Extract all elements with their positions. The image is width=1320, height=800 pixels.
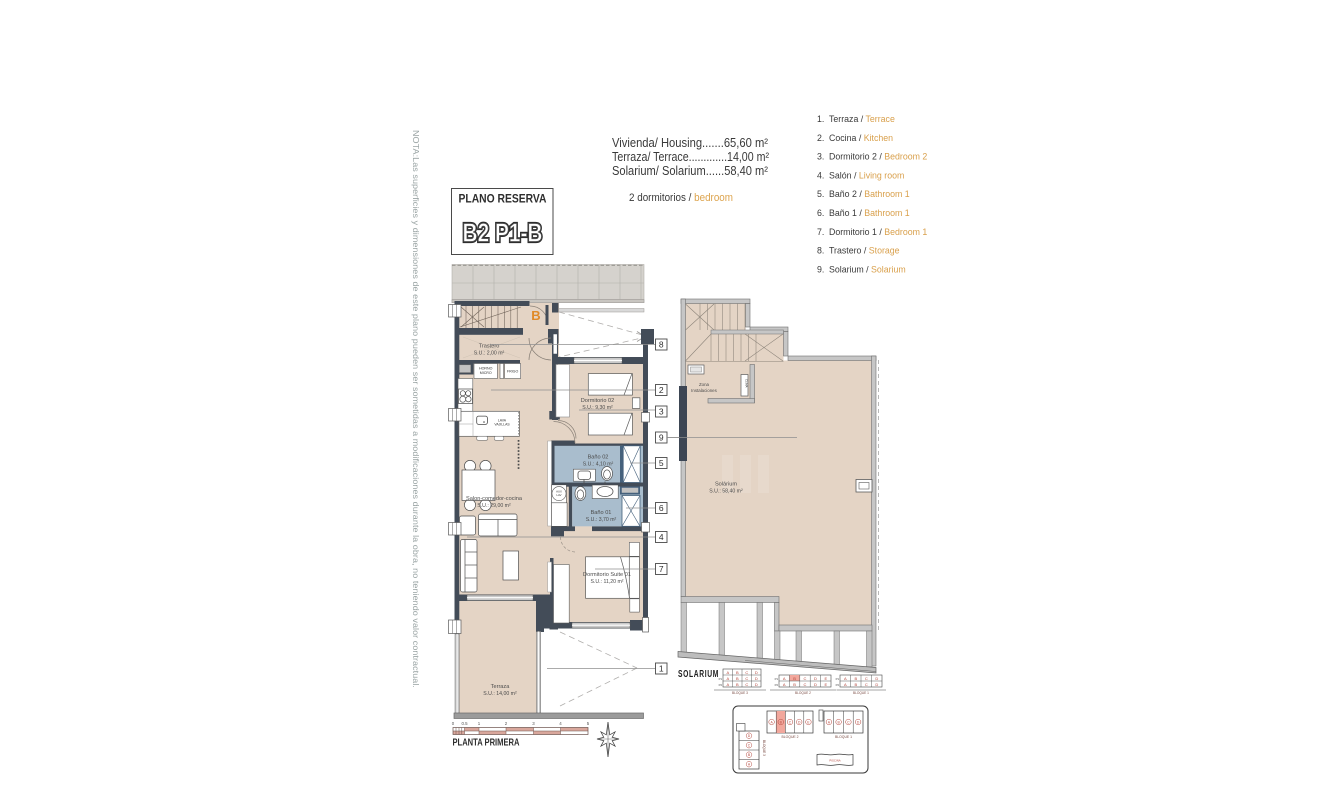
svg-text:8.: 8.	[817, 246, 824, 256]
svg-text:Dormitorio 02: Dormitorio 02	[581, 398, 615, 404]
svg-text:B: B	[854, 676, 857, 681]
svg-text:PLANTA PRIMERA: PLANTA PRIMERA	[453, 737, 520, 749]
svg-text:S.U.: 4,10 m²: S.U.: 4,10 m²	[583, 462, 614, 468]
svg-text:Trastero / Storage: Trastero / Storage	[829, 246, 900, 256]
svg-text:2 dormitorios / bedroom: 2 dormitorios / bedroom	[629, 192, 733, 204]
svg-text:Dormitorio 1 / Bedroom 1: Dormitorio 1 / Bedroom 1	[829, 227, 927, 237]
svg-text:P1: P1	[719, 677, 723, 681]
svg-text:FRIGO: FRIGO	[507, 370, 519, 374]
svg-text:Baño 01: Baño 01	[591, 510, 612, 516]
svg-text:A: A	[844, 682, 847, 687]
svg-text:Vivienda/ Housing.......65,60: Vivienda/ Housing.......65,60 m²	[612, 135, 769, 150]
svg-text:Terraza/ Terrace.............1: Terraza/ Terrace.............14,00 m²	[612, 149, 769, 164]
svg-text:C: C	[745, 682, 748, 687]
svg-text:A: A	[783, 682, 786, 687]
svg-text:Baño 02: Baño 02	[588, 455, 609, 461]
svg-text:B2 P1-B: B2 P1-B	[463, 218, 543, 248]
svg-text:2.: 2.	[817, 133, 824, 143]
svg-text:PISCINA: PISCINA	[829, 759, 840, 763]
svg-text:Solárium: Solárium	[715, 482, 737, 488]
svg-text:A: A	[726, 670, 729, 675]
svg-text:BLOQUE 3: BLOQUE 3	[762, 740, 766, 756]
svg-text:VAJILLAS: VAJILLAS	[494, 423, 510, 427]
svg-text:4.: 4.	[817, 170, 824, 180]
svg-text:B: B	[531, 308, 540, 323]
svg-text:Terraza / Terrace: Terraza / Terrace	[829, 114, 895, 124]
svg-text:BLOQUE 3: BLOQUE 3	[732, 691, 748, 695]
svg-text:Dormitorio Suite 01: Dormitorio Suite 01	[583, 572, 631, 578]
svg-text:0.5: 0.5	[461, 721, 468, 726]
svg-text:Terraza: Terraza	[491, 684, 511, 690]
svg-text:B: B	[793, 682, 796, 687]
svg-text:S.U.: 29,00 m²: S.U.: 29,00 m²	[477, 503, 511, 509]
svg-text:7.: 7.	[817, 227, 824, 237]
svg-text:SOLARIUM: SOLARIUM	[678, 668, 719, 680]
svg-text:D: D	[755, 670, 758, 675]
svg-text:E: E	[824, 676, 827, 681]
svg-text:Instalaciones: Instalaciones	[691, 388, 717, 393]
svg-text:S.U.: 11,20 m²: S.U.: 11,20 m²	[590, 579, 623, 585]
svg-text:1.: 1.	[817, 114, 824, 124]
svg-text:6.: 6.	[817, 208, 824, 218]
svg-text:Dormitorio 2 / Bedroom 2: Dormitorio 2 / Bedroom 2	[829, 152, 927, 162]
svg-text:C: C	[865, 676, 868, 681]
svg-text:5: 5	[659, 458, 664, 468]
svg-text:3: 3	[659, 407, 664, 417]
svg-text:D: D	[814, 676, 817, 681]
svg-text:NOTA:Las superficies y dimensi: NOTA:Las superficies y dimensiones de es…	[411, 130, 421, 688]
svg-text:LAV: LAV	[556, 493, 561, 497]
svg-text:6: 6	[659, 503, 664, 513]
svg-text:Salón / Living room: Salón / Living room	[829, 170, 904, 180]
svg-text:Cocina / Kitchen: Cocina / Kitchen	[829, 133, 893, 143]
svg-text:E: E	[824, 682, 827, 687]
svg-text:7: 7	[659, 564, 664, 574]
svg-text:S.U.: 58,40 m²: S.U.: 58,40 m²	[709, 489, 743, 495]
svg-text:BLOQUE 1: BLOQUE 1	[835, 735, 852, 739]
svg-text:P2: P2	[775, 683, 779, 687]
svg-text:PLANO RESERVA: PLANO RESERVA	[459, 194, 547, 206]
svg-text:1: 1	[659, 664, 664, 674]
svg-text:S.U.: 3,70 m²: S.U.: 3,70 m²	[586, 517, 617, 523]
svg-text:MICRO: MICRO	[480, 371, 492, 375]
svg-text:B: B	[736, 682, 739, 687]
svg-text:B: B	[736, 670, 739, 675]
svg-text:2: 2	[659, 385, 664, 395]
svg-text:D: D	[814, 682, 817, 687]
svg-text:B: B	[854, 682, 857, 687]
svg-text:BLOQUE 2: BLOQUE 2	[795, 691, 811, 695]
svg-text:D: D	[755, 682, 758, 687]
svg-text:P2: P2	[719, 683, 723, 687]
svg-text:P1: P1	[836, 677, 840, 681]
svg-text:A: A	[726, 682, 729, 687]
svg-text:C: C	[804, 682, 807, 687]
svg-text:8: 8	[659, 340, 664, 350]
svg-text:A: A	[726, 676, 729, 681]
svg-text:B: B	[736, 676, 739, 681]
svg-text:Solarium / Solarium: Solarium / Solarium	[829, 264, 906, 274]
svg-text:P2: P2	[836, 683, 840, 687]
svg-text:5.: 5.	[817, 189, 824, 199]
svg-text:C: C	[804, 676, 807, 681]
svg-text:S.U.: 2,00 m²: S.U.: 2,00 m²	[474, 351, 505, 357]
svg-text:C: C	[745, 676, 748, 681]
svg-text:4: 4	[659, 532, 664, 542]
svg-text:BLOQUE 2: BLOQUE 2	[782, 735, 799, 739]
svg-text:A: A	[844, 676, 847, 681]
svg-text:CLIMA: CLIMA	[745, 379, 749, 388]
svg-text:Baño 1 / Bathroom 1: Baño 1 / Bathroom 1	[829, 208, 910, 218]
svg-text:A: A	[783, 676, 786, 681]
svg-text:P1: P1	[775, 677, 779, 681]
svg-text:Baño 2 / Bathroom 1: Baño 2 / Bathroom 1	[829, 189, 910, 199]
svg-text:S.U.: 14,00 m²: S.U.: 14,00 m²	[483, 691, 517, 697]
svg-text:Zona: Zona	[699, 382, 710, 387]
svg-text:Solarium/ Solarium......58,40: Solarium/ Solarium......58,40 m²	[612, 163, 769, 178]
svg-text:BLOQUE 1: BLOQUE 1	[853, 691, 869, 695]
svg-text:D: D	[875, 682, 878, 687]
svg-text:Salon-comedor-cocina: Salon-comedor-cocina	[466, 496, 523, 502]
svg-text:D: D	[755, 676, 758, 681]
svg-text:9: 9	[659, 433, 664, 443]
svg-text:9.: 9.	[817, 264, 824, 274]
svg-text:3.: 3.	[817, 152, 824, 162]
svg-text:B: B	[793, 676, 796, 681]
svg-text:C: C	[865, 682, 868, 687]
svg-text:C: C	[745, 670, 748, 675]
svg-text:D: D	[875, 676, 878, 681]
